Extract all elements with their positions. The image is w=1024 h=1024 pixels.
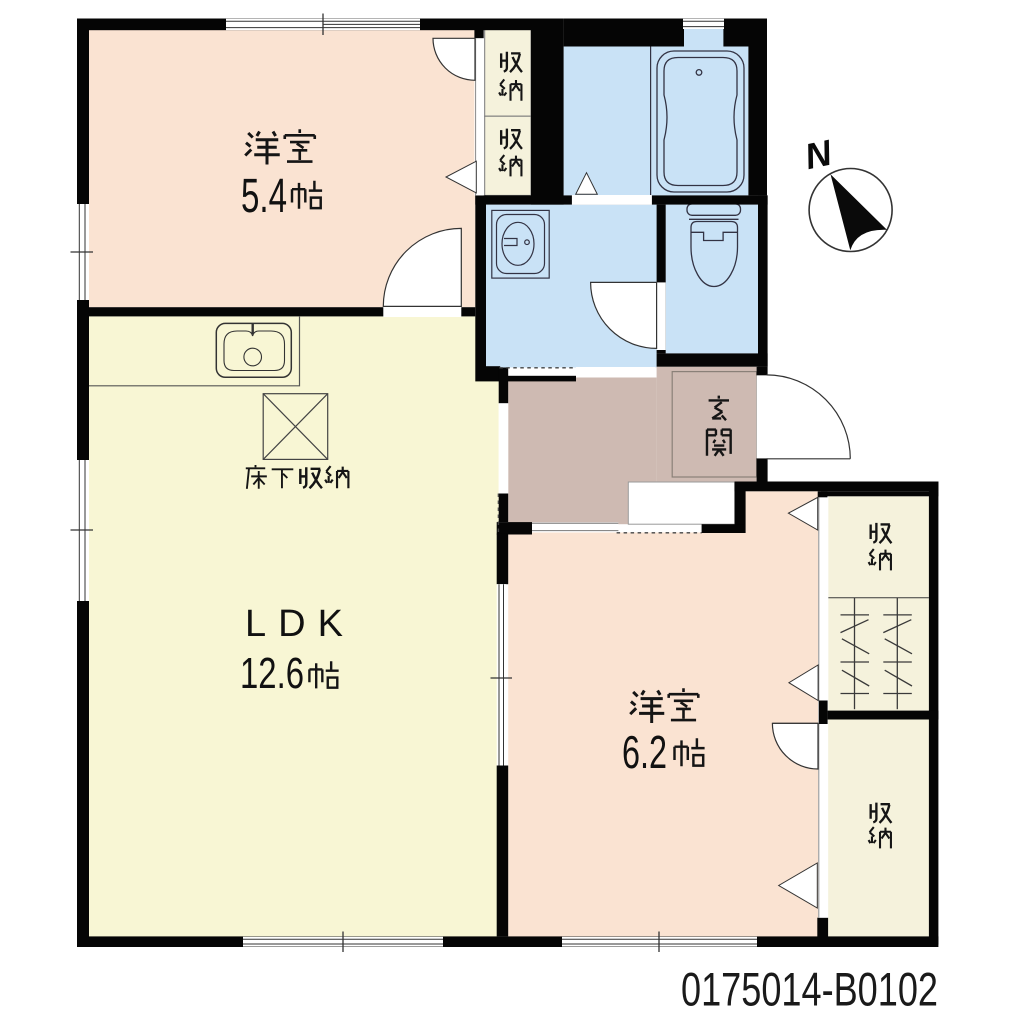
- svg-text:12.6: 12.6: [240, 649, 304, 698]
- svg-text:6.2: 6.2: [622, 726, 667, 778]
- svg-text:LDK: LDK: [245, 603, 355, 645]
- svg-text:5.4: 5.4: [241, 170, 287, 223]
- svg-text:0175014-B0102: 0175014-B0102: [681, 963, 938, 1016]
